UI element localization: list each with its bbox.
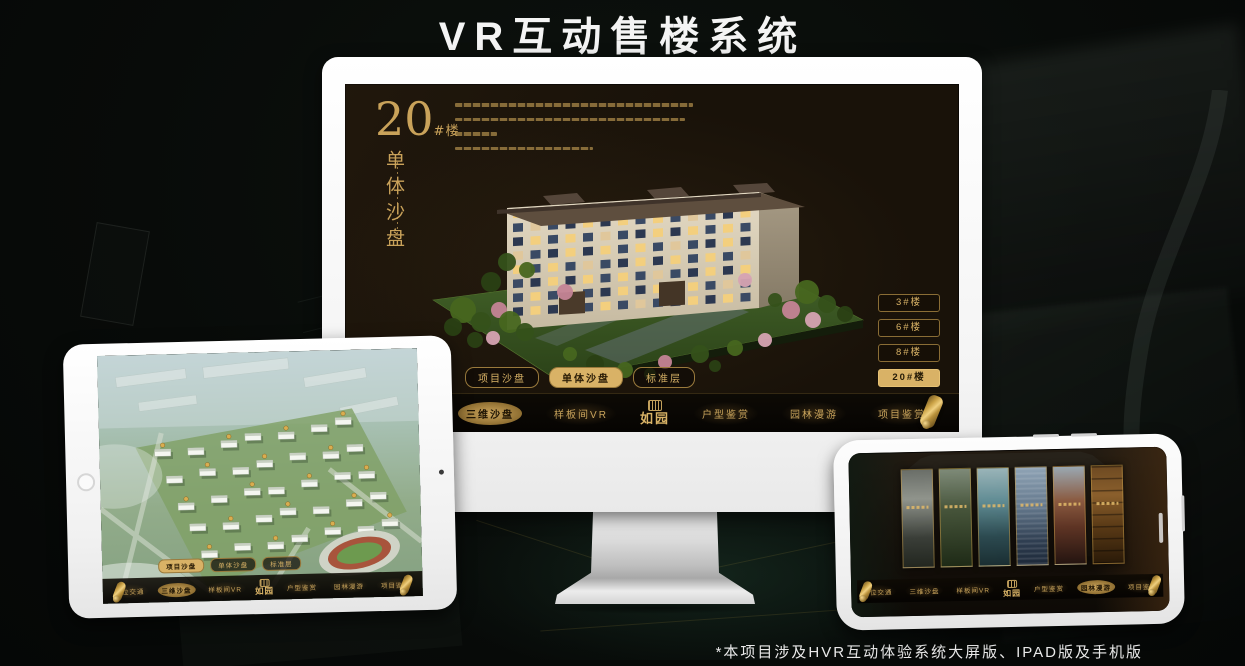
scene-panel-gallery — [901, 465, 1125, 569]
phone-screen: 区位交通 三维沙盘 样板间VR 如园 户型鉴赏 园林漫游 项目鉴赏 — [848, 447, 1169, 618]
camera-icon — [439, 470, 444, 475]
background-plaque — [80, 222, 150, 326]
nav-item-model-room-vr[interactable]: 样板间VR — [204, 581, 246, 596]
description-line — [455, 103, 693, 107]
subtab-single-sandtable[interactable]: 单体沙盘 — [210, 557, 256, 572]
subtab-standard-floor[interactable]: 标准层 — [262, 556, 301, 571]
brand-logo: 如园 — [255, 578, 274, 596]
description-line — [455, 132, 497, 136]
brand-logo: 如园 — [1003, 580, 1021, 597]
scene-panel[interactable] — [977, 467, 1011, 567]
monitor-subtabs: 项目沙盘 单体沙盘 标准层 — [465, 367, 695, 388]
scroll-icon[interactable] — [401, 574, 410, 594]
floor-button-8[interactable]: 8#楼 — [878, 344, 940, 362]
building-illustration — [415, 142, 875, 392]
brand-logo: 如园 — [640, 400, 670, 426]
unit-number: 20#楼 — [375, 96, 459, 142]
floor-button-20[interactable]: 20#楼 — [878, 369, 940, 387]
nav-item-model-room-vr[interactable]: 样板间VR — [546, 402, 616, 425]
scene-panel[interactable] — [1015, 466, 1049, 566]
nav-item-unit-gallery[interactable]: 户型鉴赏 — [283, 579, 321, 594]
scroll-icon[interactable] — [115, 581, 124, 601]
scroll-icon[interactable] — [861, 581, 870, 601]
nav-item-garden-tour[interactable]: 园林漫游 — [330, 578, 368, 593]
scene-panel[interactable] — [901, 469, 935, 569]
scroll-icon[interactable] — [924, 395, 939, 428]
nav-item-unit-gallery[interactable]: 户型鉴赏 — [694, 402, 758, 425]
subtab-standard-floor[interactable]: 标准层 — [633, 367, 695, 388]
nav-item-3d-sandtable[interactable]: 三维沙盘 — [905, 583, 943, 598]
scene-panel[interactable] — [939, 468, 973, 568]
nav-item-unit-gallery[interactable]: 户型鉴赏 — [1030, 580, 1068, 595]
floor-button-3[interactable]: 3#楼 — [878, 294, 940, 312]
floor-button-6[interactable]: 6#楼 — [878, 319, 940, 337]
scroll-icon[interactable] — [1150, 575, 1159, 595]
seal-icon — [648, 400, 662, 411]
tablet-screen: 项目沙盘 单体沙盘 标准层 区位交通 三维沙盘 样板间VR 如园 户型鉴赏 园林… — [97, 348, 423, 604]
phone-device: 区位交通 三维沙盘 样板间VR 如园 户型鉴赏 园林漫游 项目鉴赏 — [833, 433, 1185, 630]
notch-speaker — [1159, 513, 1164, 543]
scene-panel[interactable] — [1053, 465, 1087, 565]
page-title: VR互动售楼系统 — [0, 4, 1245, 62]
nav-item-model-room-vr[interactable]: 样板间VR — [952, 582, 994, 597]
scene-panel[interactable] — [1091, 465, 1125, 565]
footnote: *本项目涉及HVR互动体验系统大屏版、IPAD版及手机版 — [716, 641, 1143, 662]
volume-button[interactable] — [1071, 433, 1097, 437]
floor-selector: 3#楼 6#楼 8#楼 20#楼 — [878, 294, 940, 387]
unit-caption: 单体沙盘 — [381, 150, 408, 254]
description-line — [455, 118, 685, 122]
unit-caption-decor — [397, 162, 398, 240]
promo-canvas: VR互动售楼系统 20#楼 单体沙盘 — [0, 0, 1245, 666]
subtab-project-sandtable[interactable]: 项目沙盘 — [465, 367, 539, 388]
home-button[interactable] — [77, 473, 95, 491]
nav-item-3d-sandtable[interactable]: 三维沙盘 — [458, 402, 522, 425]
seal-icon — [259, 579, 269, 587]
background-river — [1090, 90, 1240, 450]
nav-item-garden-tour[interactable]: 园林漫游 — [1077, 579, 1115, 594]
subtab-project-sandtable[interactable]: 项目沙盘 — [158, 558, 204, 573]
nav-item-3d-sandtable[interactable]: 三维沙盘 — [157, 582, 195, 597]
nav-item-garden-tour[interactable]: 园林漫游 — [782, 402, 846, 425]
seal-icon — [1007, 580, 1017, 588]
volume-button[interactable] — [1033, 434, 1059, 438]
subtab-single-sandtable[interactable]: 单体沙盘 — [549, 367, 623, 388]
tablet-device: 项目沙盘 单体沙盘 标准层 区位交通 三维沙盘 样板间VR 如园 户型鉴赏 园林… — [63, 335, 458, 618]
